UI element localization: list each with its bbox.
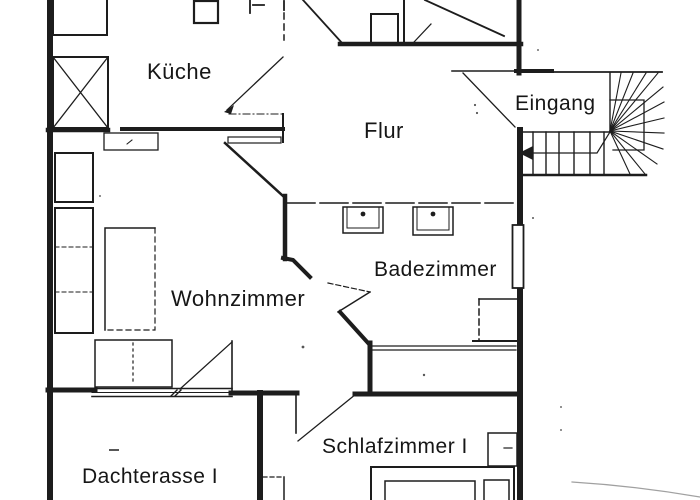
flur-sideboard — [104, 133, 158, 150]
room-label-badezimmer: Badezimmer — [374, 258, 497, 282]
pillow — [484, 480, 509, 500]
room-label-flur: Flur — [364, 118, 404, 143]
topmid-diagonal-2 — [425, 0, 504, 36]
bathtub — [372, 346, 516, 350]
bedroom-door-swing — [298, 394, 356, 441]
washbasin-2 — [413, 207, 453, 235]
dining-table — [95, 340, 172, 387]
bed — [371, 467, 514, 500]
armchair — [55, 153, 93, 202]
room-label-dachterasse: Dachterasse I — [82, 465, 218, 489]
terrace-door-swing — [180, 342, 232, 389]
sofa — [55, 208, 93, 333]
doors — [180, 57, 516, 441]
bath-door-swing — [328, 283, 370, 292]
chimney-box — [371, 14, 398, 44]
kitchen-cabinet-topleft — [53, 0, 107, 35]
kitchen-door-swing — [227, 57, 283, 110]
side-table — [105, 228, 155, 330]
kitchen-door-arrow-icon — [224, 105, 234, 114]
interior-walls — [225, 0, 517, 203]
flur-fixtures — [104, 133, 281, 150]
entrance-door-swing — [463, 73, 515, 127]
shower — [473, 299, 517, 341]
stair-fan-lines — [610, 73, 664, 174]
wall-flur-angled — [225, 143, 283, 196]
stove-box — [194, 1, 218, 23]
faucet-dot-icon — [361, 212, 366, 217]
mattress — [385, 481, 475, 500]
wall-angled-bath — [340, 312, 369, 344]
room-label-eingang: Eingang — [515, 92, 596, 116]
cropped-fixture — [250, 0, 264, 13]
living-room-furniture — [55, 153, 172, 387]
faucet-dot-icon — [431, 212, 436, 217]
room-label-wohnzimmer: Wohnzimmer — [171, 286, 305, 311]
floor-plan-drawing — [0, 0, 700, 500]
stair-walk-line — [531, 132, 610, 153]
room-label-schlafzimmer: Schlafzimmer I — [322, 435, 468, 459]
staircase — [519, 73, 664, 176]
wardrobe — [263, 477, 284, 500]
exterior-walls — [48, 0, 662, 500]
terrace-window — [92, 389, 232, 397]
window-right-wall — [513, 225, 524, 288]
washbasin-1 — [343, 207, 383, 233]
topmid-diagonal-1 — [303, 0, 342, 43]
room-label-kueche: Küche — [147, 59, 212, 84]
faint-curve — [572, 482, 700, 497]
flur-counter — [228, 137, 281, 143]
bath-door-leaf — [338, 292, 370, 312]
topmid-door-swing — [414, 24, 431, 42]
nightstand — [488, 433, 517, 466]
floor-plan: Küche Flur Eingang Wohnzimmer Badezimmer… — [0, 0, 700, 500]
sideboard-tick — [127, 140, 132, 144]
